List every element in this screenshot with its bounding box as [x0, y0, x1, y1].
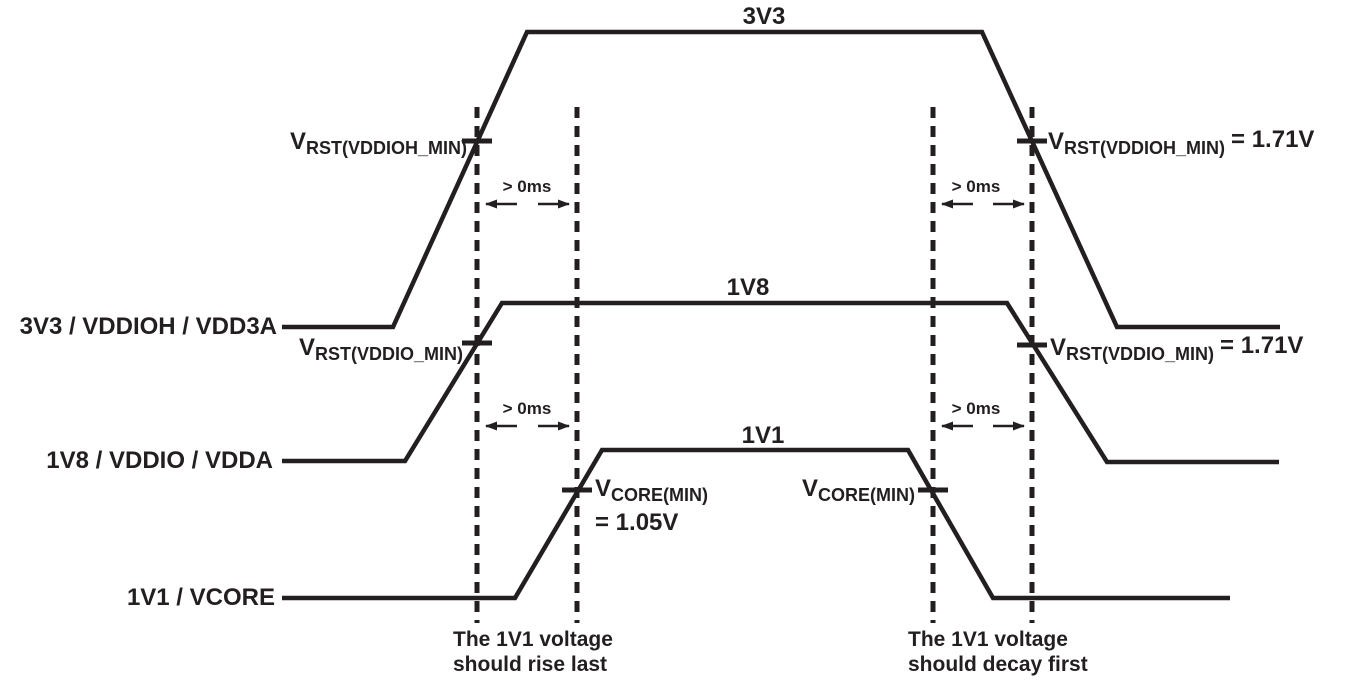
threshold-subscript: RST(VDDIOH_MIN) — [306, 138, 467, 158]
timing-label-fall-upper: > 0ms — [952, 178, 1001, 195]
threshold-label-rise-vddioh: VRST(VDDIOH_MIN) — [290, 130, 467, 155]
note-line: should decay first — [908, 652, 1088, 677]
timing-label-rise-upper: > 0ms — [503, 178, 552, 195]
threshold-prefix: V — [299, 334, 315, 361]
threshold-label-fall-vcore: VCORE(MIN) — [802, 477, 915, 502]
threshold-subscript: CORE(MIN) — [611, 485, 708, 505]
threshold-value: = 1.71V — [1231, 126, 1314, 153]
threshold-subscript: RST(VDDIO_MIN) — [315, 344, 463, 364]
level-label-3v3: 3V3 — [743, 5, 786, 29]
level-label-1v1: 1V1 — [742, 424, 785, 448]
note-line: The 1V1 voltage — [453, 627, 613, 652]
rail-label-1v1: 1V1 / VCORE — [127, 586, 275, 610]
level-label-1v8: 1V8 — [727, 276, 770, 300]
threshold-label-rise-vcore: VCORE(MIN) = 1.05V — [595, 477, 708, 535]
timing-label-rise-lower: > 0ms — [503, 400, 552, 417]
power-sequencing-timing-diagram: 3V3 1V8 1V1 3V3 / VDDIOH / VDD3A 1V8 / V… — [0, 0, 1369, 685]
note-line: should rise last — [453, 652, 613, 677]
rail-label-1v8: 1V8 / VDDIO / VDDA — [46, 449, 273, 473]
waveform-3v3 — [282, 32, 1280, 327]
timing-label-fall-lower: > 0ms — [952, 400, 1001, 417]
waveform-1v1 — [282, 450, 1230, 598]
threshold-value: = 1.05V — [595, 511, 708, 535]
threshold-label-fall-vddio: VRST(VDDIO_MIN)= 1.71V — [1050, 336, 1303, 361]
note-fall: The 1V1 voltage should decay first — [908, 627, 1088, 677]
threshold-prefix: V — [1050, 334, 1066, 361]
threshold-label-fall-vddioh: VRST(VDDIOH_MIN)= 1.71V — [1048, 130, 1314, 155]
threshold-subscript: RST(VDDIOH_MIN) — [1064, 138, 1225, 158]
note-rise: The 1V1 voltage should rise last — [453, 627, 613, 677]
threshold-subscript: RST(VDDIO_MIN) — [1066, 344, 1214, 364]
threshold-prefix: V — [802, 475, 818, 502]
threshold-symbol-line: VCORE(MIN) — [595, 477, 708, 502]
threshold-prefix: V — [290, 128, 306, 155]
threshold-subscript: CORE(MIN) — [818, 485, 915, 505]
threshold-label-rise-vddio: VRST(VDDIO_MIN) — [299, 336, 463, 361]
threshold-value: = 1.71V — [1220, 332, 1303, 359]
note-line: The 1V1 voltage — [908, 627, 1088, 652]
rail-label-3v3: 3V3 / VDDIOH / VDD3A — [20, 315, 277, 339]
threshold-prefix: V — [1048, 128, 1064, 155]
threshold-prefix: V — [595, 475, 611, 502]
